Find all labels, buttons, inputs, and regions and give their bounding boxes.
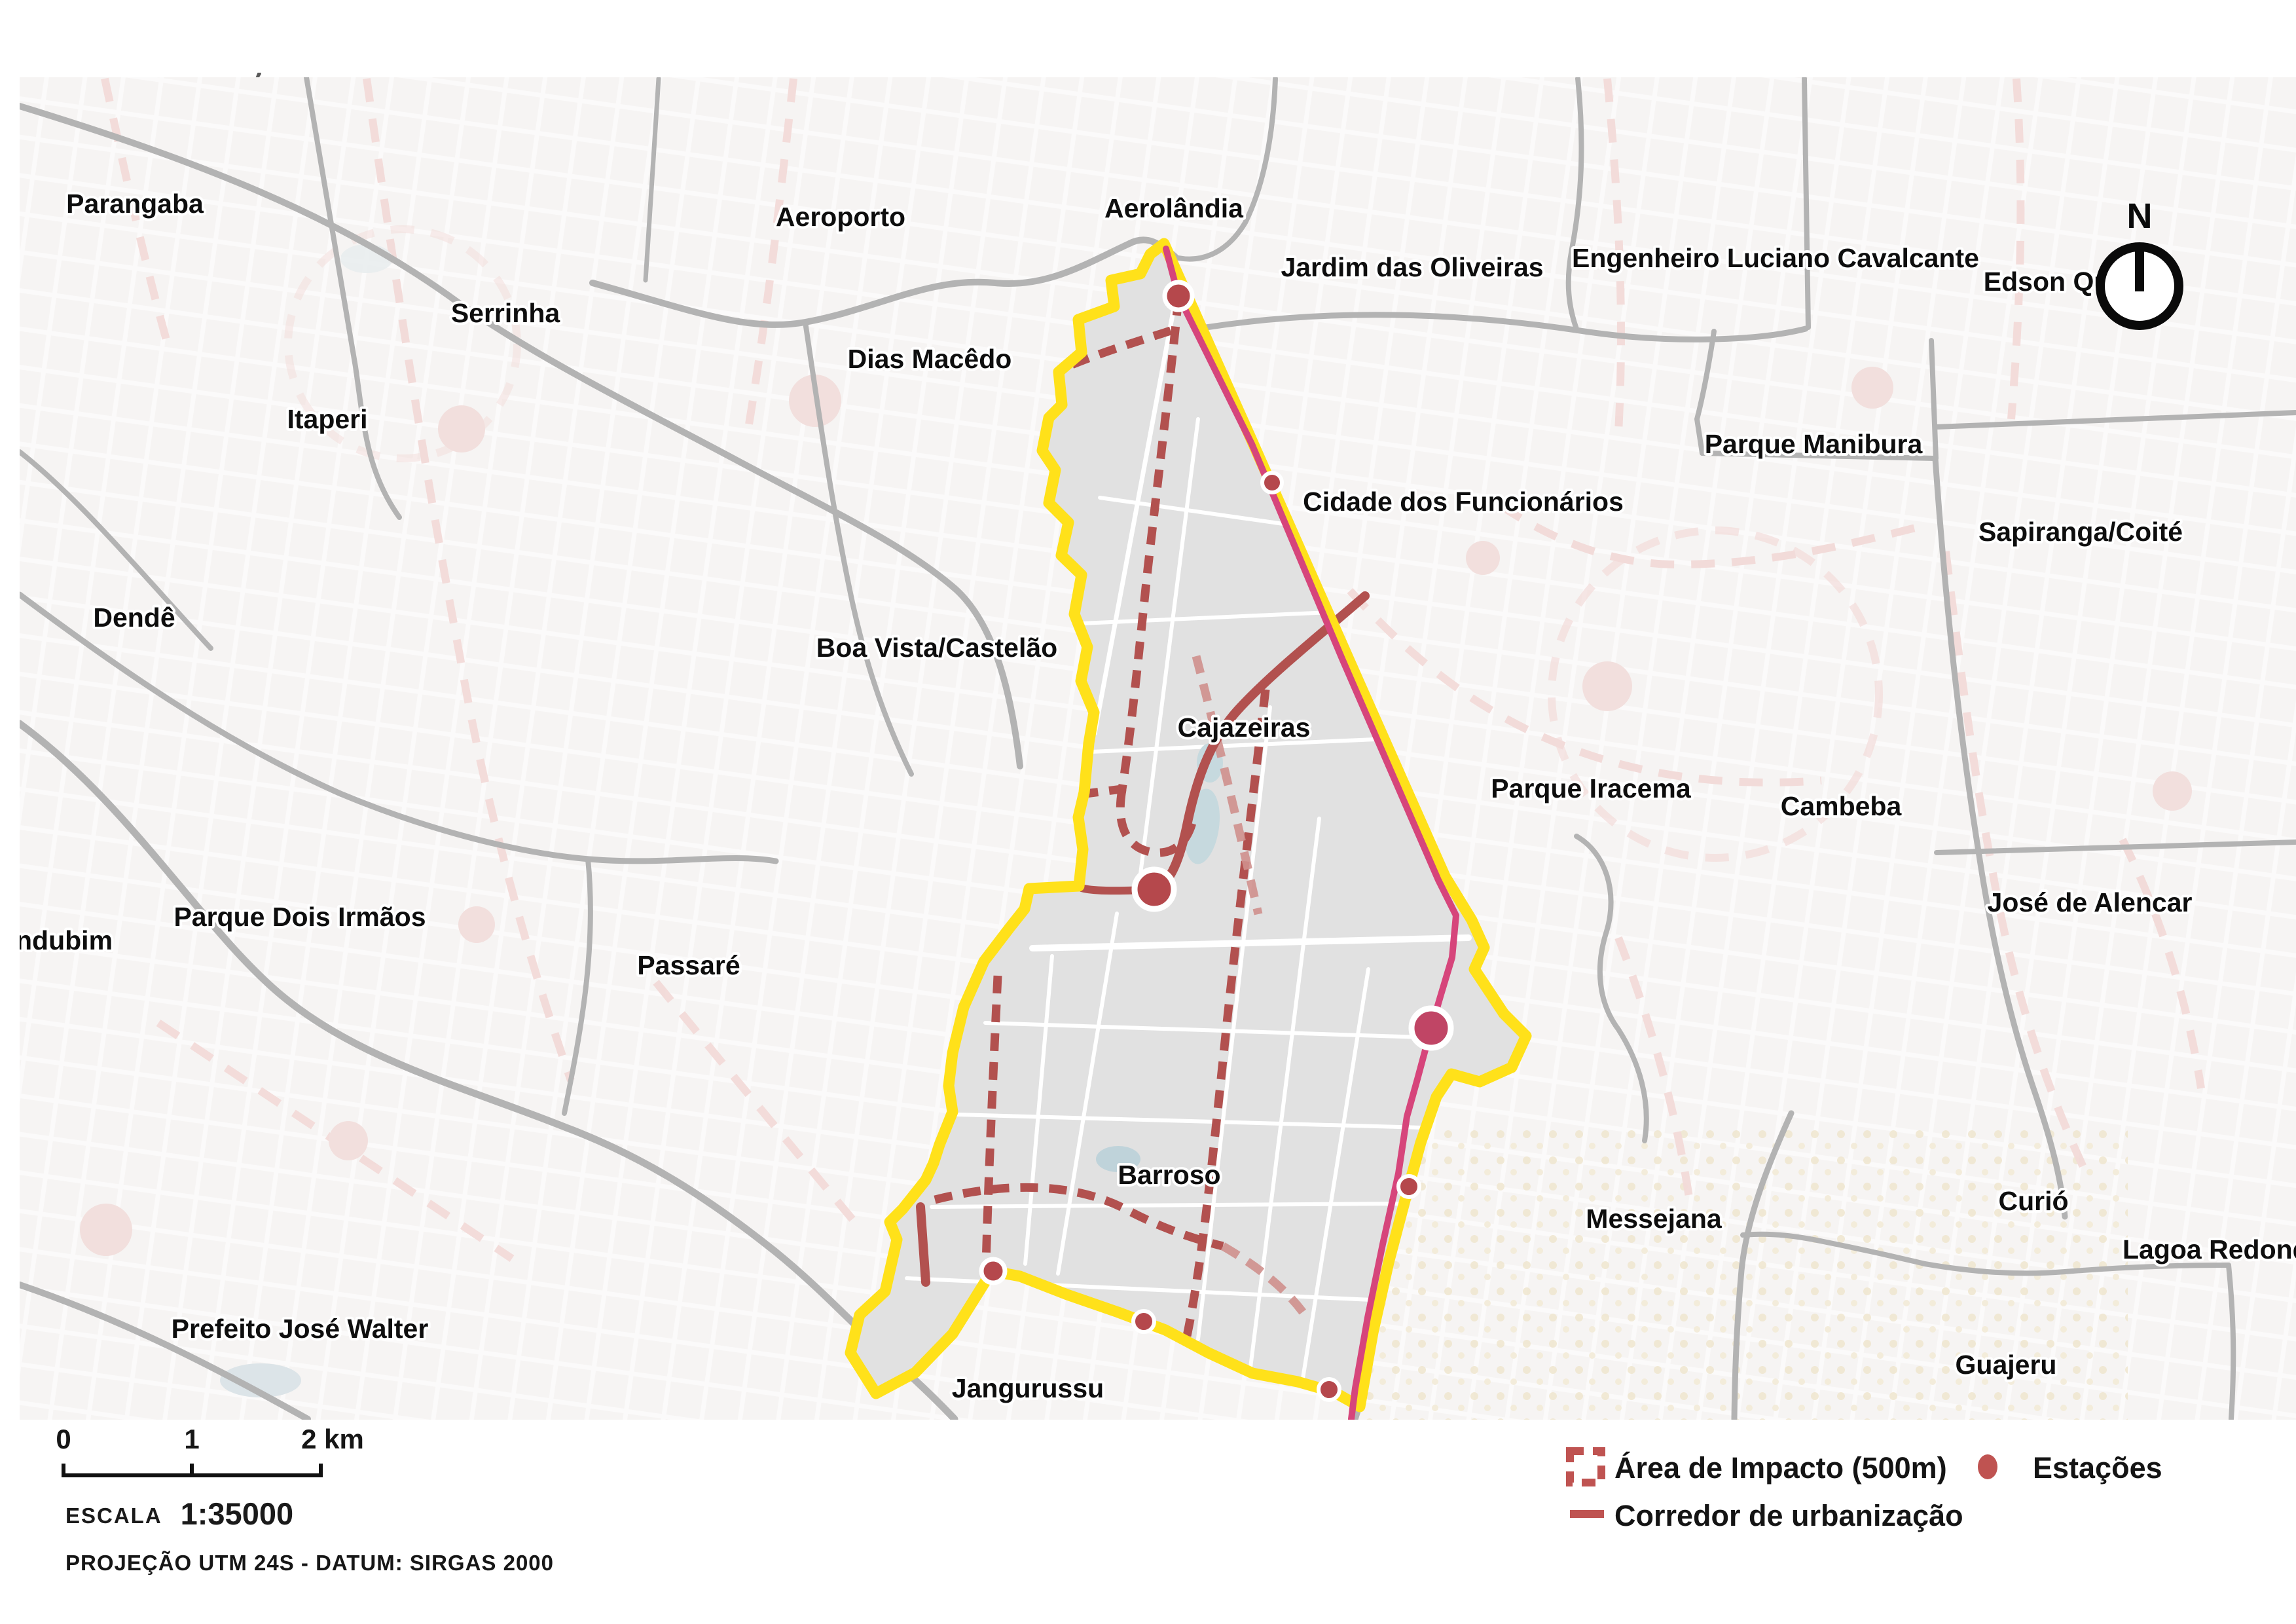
- compass-needle-icon: [2135, 247, 2144, 291]
- legend-item-corridor: Corredor de urbanização: [1570, 1499, 1963, 1532]
- projection-note: PROJEÇÃO UTM 24S - DATUM: SIRGAS 2000: [65, 1551, 554, 1575]
- corridor-swatch-icon: [1570, 1510, 1604, 1518]
- station-dot: [981, 1259, 1005, 1283]
- label-lagoa-redonda: Lagoa Redond: [2123, 1234, 2296, 1264]
- label-parangaba: Parangaba: [66, 189, 204, 219]
- label-parque-dois-irmaos: Parque Dois Irmãos: [173, 902, 426, 932]
- legend: Área de Impacto (500m) Estações Corredor…: [1570, 1451, 2162, 1532]
- station-dot: [1412, 1008, 1451, 1048]
- station-dot: [1262, 473, 1282, 492]
- label-cajazeiras: Cajazeiras: [1178, 712, 1311, 743]
- station-dot: [1165, 282, 1192, 310]
- label-messejana: Messejana: [1586, 1204, 1722, 1234]
- label-guajeru: Guajeru: [1956, 1350, 2057, 1380]
- label-mondubim: ndubim: [16, 925, 113, 955]
- label-passare: Passaré: [637, 950, 740, 980]
- legend-corridor-label: Corredor de urbanização: [1614, 1499, 1963, 1532]
- legend-item-stations: Estações: [1978, 1451, 2162, 1485]
- scalebar-tick-2: 2 km: [301, 1424, 364, 1454]
- label-parque-iracema: Parque Iracema: [1491, 773, 1692, 803]
- scalebar-line: [64, 1464, 321, 1475]
- impact-area-swatch-icon: [1570, 1451, 1601, 1483]
- scale-caption: ESCALA 1:35000: [65, 1496, 293, 1531]
- label-aeroporto: Aeroporto: [776, 202, 905, 232]
- label-prefeito-jose-walter: Prefeito José Walter: [172, 1314, 429, 1344]
- scalebar-tick-1: 1: [184, 1424, 199, 1454]
- scalebar: 0 1 2 km ESCALA 1:35000 PROJEÇÃO UTM 24S…: [56, 1424, 554, 1575]
- label-jardim-das-oliveiras: Jardim das Oliveiras: [1281, 252, 1543, 282]
- label-itaperi: Itaperi: [287, 404, 367, 434]
- planos-especificos-map-sheet: PLANOS ESPECÍFICOS FORTALEZA 2040: [0, 0, 2296, 1624]
- legend-stations-label: Estações: [2033, 1451, 2162, 1485]
- label-jangurussu: Jangurussu: [952, 1373, 1104, 1403]
- label-sapiranga-coite: Sapiranga/Coité: [1978, 517, 2183, 547]
- station-swatch-icon: [1978, 1454, 1997, 1479]
- label-dias-macedo: Dias Macêdo: [848, 344, 1012, 374]
- compass-north-label: N: [2127, 196, 2153, 236]
- map-canvas: Parangaba Aeroporto Aerolândia Jardim da…: [16, 77, 2296, 1477]
- label-cambeba: Cambeba: [1781, 791, 1903, 821]
- station-dot: [1319, 1379, 1339, 1400]
- label-curio: Curió: [1998, 1186, 2068, 1216]
- station-dot: [1398, 1176, 1419, 1197]
- label-engenheiro-luciano-cavalcante: Engenheiro Luciano Cavalcante: [1572, 243, 1979, 273]
- label-barroso: Barroso: [1118, 1160, 1220, 1190]
- label-cidade-dos-funcionarios: Cidade dos Funcionários: [1303, 487, 1624, 517]
- label-aerolandia: Aerolândia: [1104, 193, 1244, 223]
- station-dot: [1135, 870, 1174, 909]
- scale-value: 1:35000: [181, 1496, 294, 1531]
- scale-word: ESCALA: [65, 1504, 161, 1528]
- label-boa-vista-castelao: Boa Vista/Castelão: [816, 633, 1057, 663]
- label-dende: Dendê: [93, 602, 175, 633]
- legend-item-impact-area: Área de Impacto (500m): [1570, 1451, 1947, 1485]
- label-jose-de-alencar: José de Alencar: [1988, 887, 2193, 917]
- legend-impact-label: Área de Impacto (500m): [1614, 1451, 1947, 1485]
- scalebar-tick-0: 0: [56, 1424, 71, 1454]
- label-parque-manibura: Parque Manibura: [1705, 429, 1923, 459]
- station-dot: [1133, 1311, 1154, 1332]
- label-serrinha: Serrinha: [451, 298, 561, 328]
